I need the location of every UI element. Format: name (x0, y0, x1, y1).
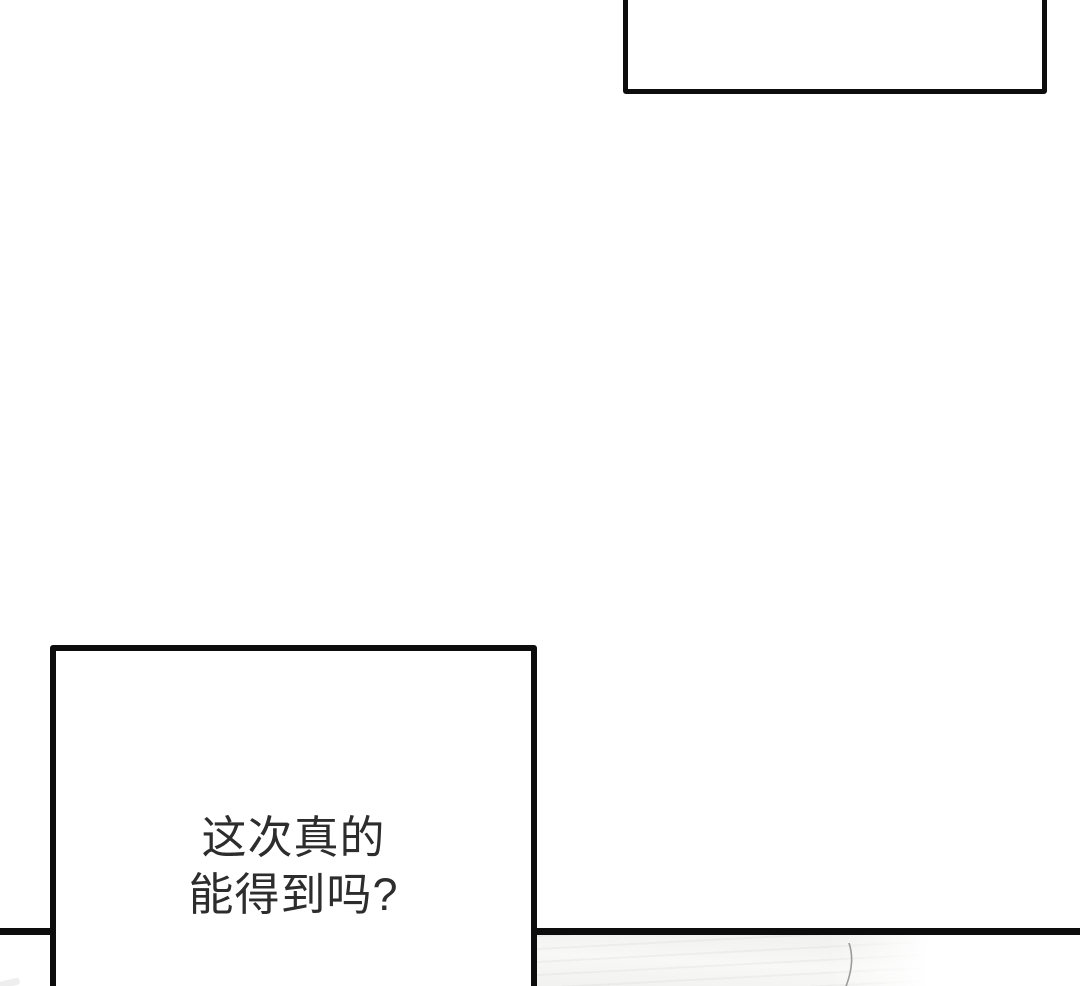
hair-strand-curve (837, 943, 861, 986)
speech-bubble-top-right (623, 0, 1047, 94)
bottom-left-artwork-smudge (0, 977, 20, 986)
bottom-panel-artwork (537, 935, 942, 986)
speech-bubble-bottom-left: 这次真的 能得到吗? (50, 645, 537, 986)
dialog-line-2: 能得到吗? (56, 866, 531, 923)
dialog-text: 这次真的 能得到吗? (56, 809, 531, 923)
comic-page: 这次真的 能得到吗? (0, 0, 1080, 986)
dialog-line-1: 这次真的 (56, 809, 531, 866)
